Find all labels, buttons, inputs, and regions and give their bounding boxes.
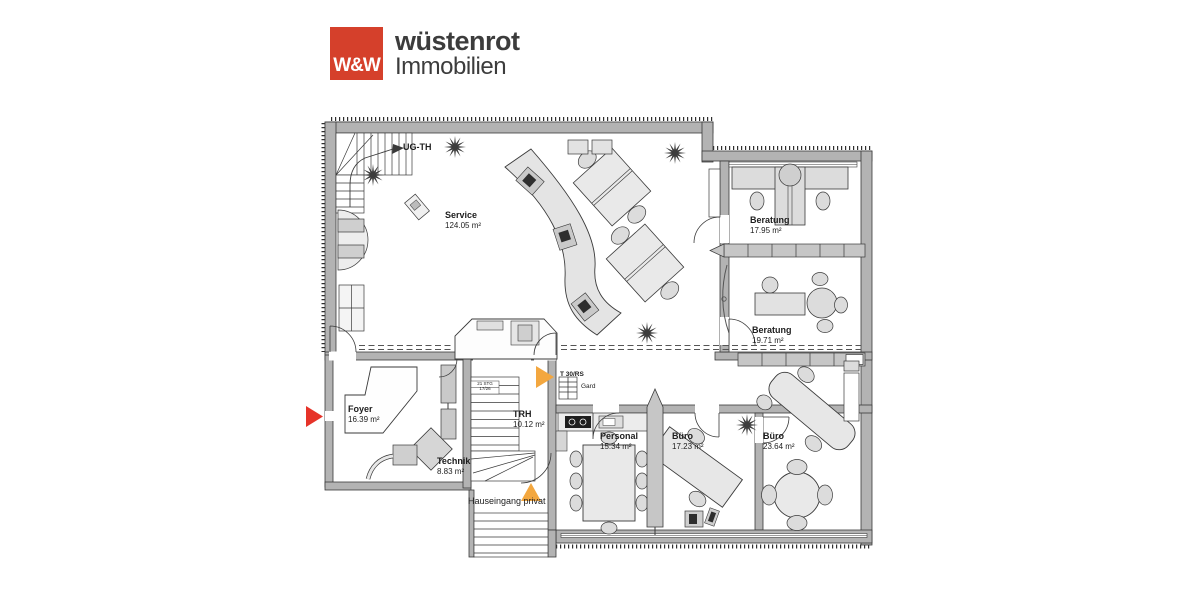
- room-area: 19.71 m²: [752, 336, 792, 346]
- plant-icon: [636, 322, 658, 344]
- logo-text: wüstenrot Immobilien: [395, 28, 520, 80]
- room-name: Büro: [763, 431, 795, 442]
- room-name: Personal: [600, 431, 638, 442]
- room-area: 8.83 m²: [437, 467, 470, 477]
- logo-brand-name: wüstenrot: [395, 28, 520, 54]
- plant-icon: [664, 142, 686, 164]
- room-name: Beratung: [752, 325, 792, 336]
- room-area: 124.05 m²: [445, 221, 481, 231]
- floor-plan: UG-TH Service 124.05 m² Beratung 17.95 m…: [305, 115, 885, 560]
- info-stand: [405, 194, 430, 220]
- logo-brand-subtitle: Immobilien: [395, 54, 520, 80]
- room-area: 17.95 m²: [750, 226, 790, 236]
- room-label-foyer: Foyer 16.39 m²: [348, 404, 380, 425]
- stair-spec: 21 STG 17/26: [471, 381, 499, 391]
- room-area: 10.12 m²: [513, 420, 545, 430]
- left-wall-cabinets: [338, 210, 368, 331]
- stair-spec-line2: 17/26: [471, 386, 499, 391]
- room-area: 15.34 m²: [600, 442, 638, 452]
- wardrobe-rack: [559, 377, 577, 399]
- wardrobe-label: Gard: [581, 383, 595, 390]
- room-name: Technik: [437, 456, 470, 467]
- room-area: 17.23 m²: [672, 442, 704, 452]
- logo-mark-text: W&W: [333, 55, 380, 77]
- room-label-beratung-mid: Beratung 19.71 m²: [752, 325, 792, 346]
- plant-icon: [444, 136, 466, 158]
- private-entrance-label: Hauseingang privat: [468, 496, 546, 506]
- glass-partition-line: [359, 346, 861, 350]
- room-area: 23.64 m²: [763, 442, 795, 452]
- room-name: Service: [445, 210, 481, 221]
- logo: W&W wüstenrot Immobilien: [330, 27, 520, 80]
- beratung-mid-furniture: [722, 265, 848, 333]
- room-label-trh: TRH 10.12 m²: [513, 409, 545, 430]
- pillar: [647, 389, 663, 535]
- logo-mark-ww: W&W: [330, 27, 383, 80]
- fire-door-label: T 30/RS: [560, 371, 584, 378]
- floor-plan-svg: [305, 115, 885, 560]
- room-name: TRH: [513, 409, 545, 420]
- main-entrance-arrow: [306, 406, 323, 427]
- room-label-service: Service 124.05 m²: [445, 210, 481, 231]
- room-label-personal: Personal 15.34 m²: [600, 431, 638, 452]
- room-label-beratung-top: Beratung 17.95 m²: [750, 215, 790, 236]
- room-name: Büro: [672, 431, 704, 442]
- stair-label-ugth: UG-TH: [403, 142, 432, 152]
- room-label-buero-right: Büro 23.64 m²: [763, 431, 795, 452]
- room-name: Beratung: [750, 215, 790, 226]
- partition-shelf-row: [710, 244, 865, 257]
- entrance-vestibule: [455, 319, 557, 359]
- room-area: 16.39 m²: [348, 415, 380, 425]
- room-label-buero-mid: Büro 17.23 m²: [672, 431, 704, 452]
- room-name: Foyer: [348, 404, 380, 415]
- service-desk-group-b: [596, 213, 694, 314]
- private-entrance-steps: [474, 513, 548, 557]
- room-label-technik: Technik 8.83 m²: [437, 456, 470, 477]
